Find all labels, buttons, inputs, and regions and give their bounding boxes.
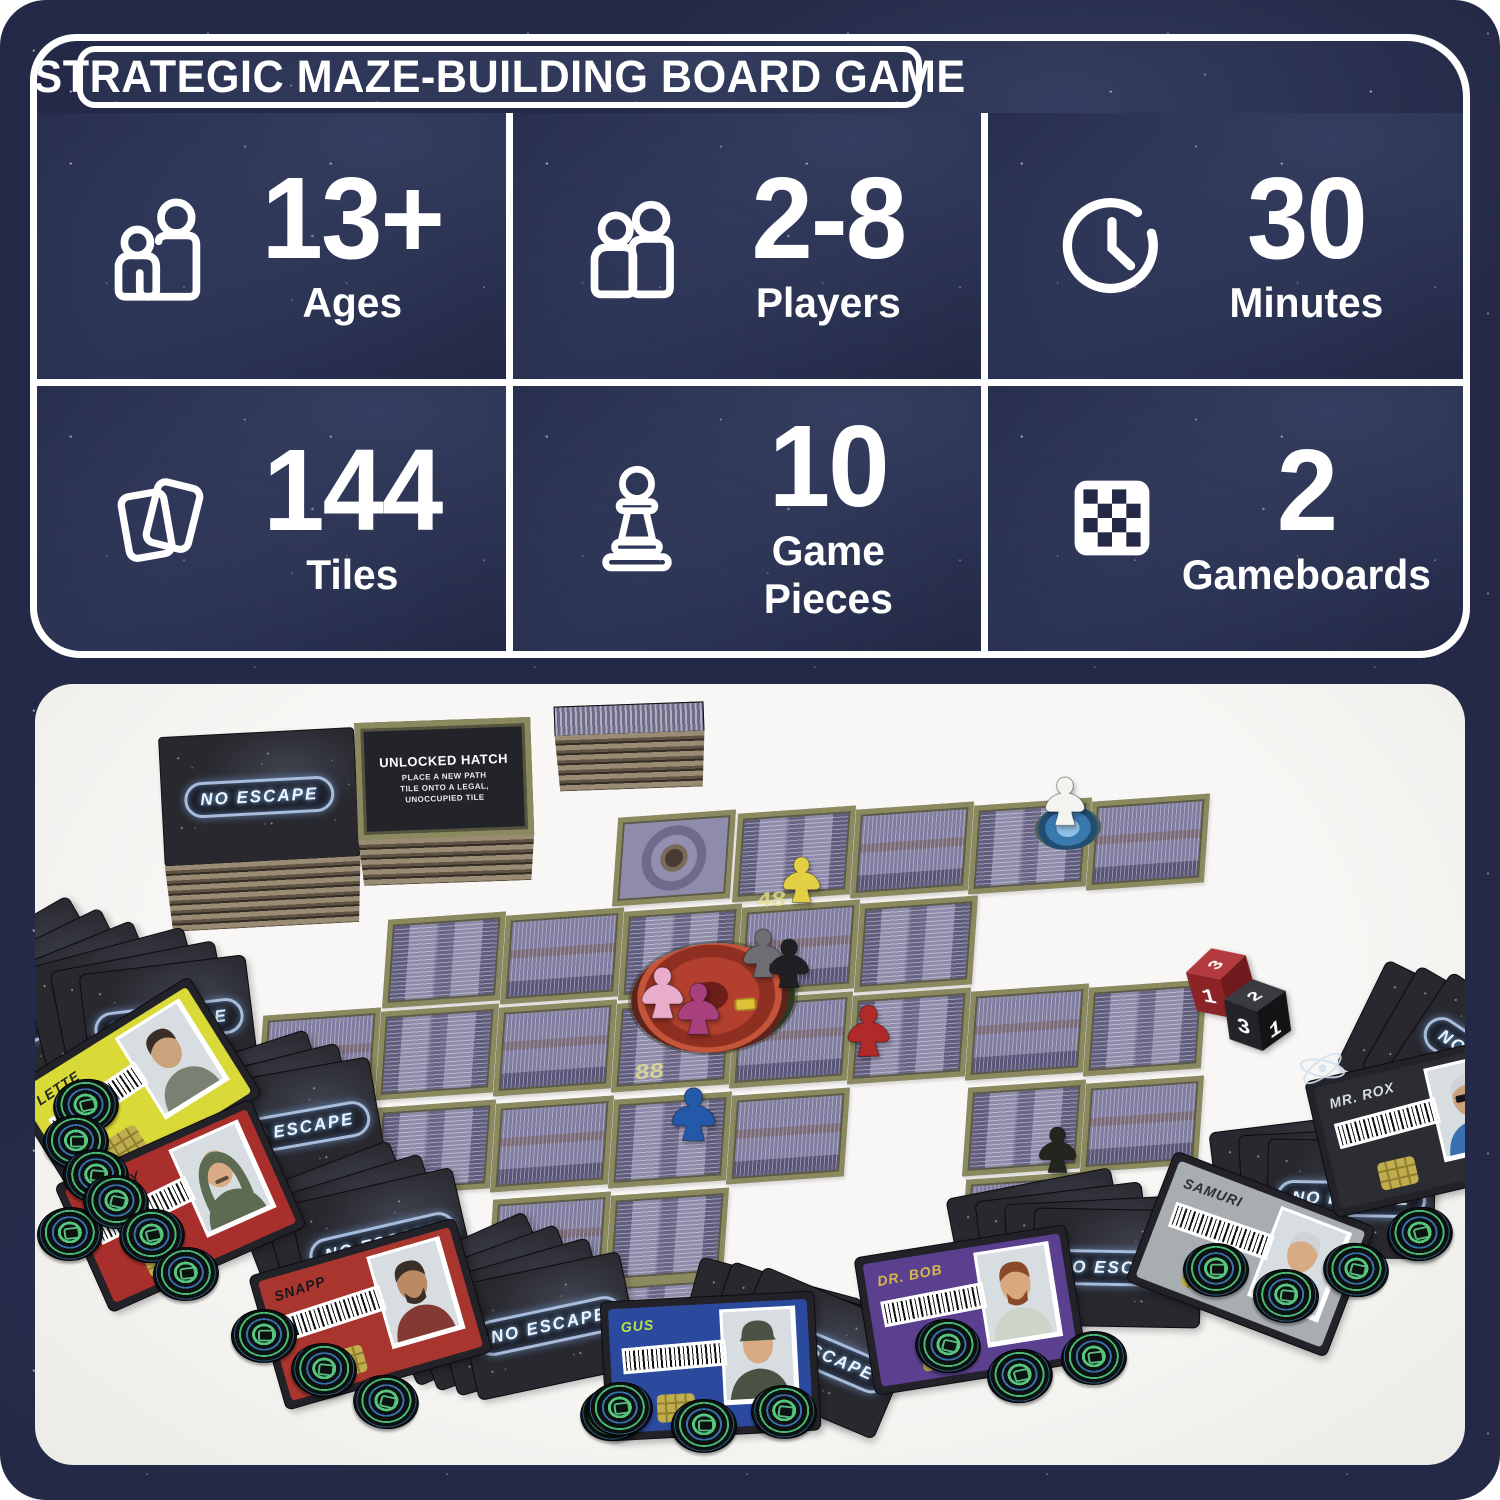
chip-icon — [1376, 1155, 1419, 1191]
logo-text: NO ESCAPE — [489, 1304, 609, 1347]
tile-stack-side — [554, 701, 707, 791]
stat-label: Gameboards — [1182, 551, 1431, 599]
stat-value: 30 — [1185, 159, 1429, 277]
stat-cell-game-pieces: 10Game Pieces — [513, 386, 982, 652]
stack-side — [555, 730, 707, 791]
tile-stack-logo: NO ESCAPE — [158, 727, 364, 932]
title-box: STRATEGIC MAZE-BUILDING BOARD GAME — [77, 46, 922, 108]
board-tile — [493, 1000, 617, 1097]
stats-grid: 13+Ages2-8Players30Minutes144Tiles10Game… — [37, 113, 1463, 651]
stat-label: Tiles — [231, 551, 474, 599]
character-name: SAMURI — [1182, 1175, 1245, 1210]
pawn-icon — [571, 458, 703, 578]
stat-text: 2Gameboards — [1178, 431, 1435, 599]
players-icon — [571, 187, 703, 305]
red-meeple — [841, 998, 896, 1068]
stats-panel: STRATEGIC MAZE-BUILDING BOARD GAME 13+Ag… — [30, 34, 1470, 658]
stat-cell-tiles: 144Tiles — [37, 386, 506, 652]
stat-label: Ages — [231, 279, 474, 327]
board-marking: 88 — [634, 1058, 665, 1085]
resource-token — [671, 1399, 737, 1453]
stack-side — [358, 834, 535, 886]
stack-top-hatch: UNLOCKED HATCHPLACE A NEW PATHTILE ONTO … — [354, 717, 534, 841]
gameboard-icon — [1046, 463, 1178, 573]
board-tile-octagon — [612, 810, 736, 907]
hatch-card-title: UNLOCKED HATCH — [379, 751, 508, 770]
stat-value: 2 — [1185, 431, 1429, 549]
character-name: SNAPP — [272, 1273, 328, 1305]
tiles-icon — [95, 458, 227, 578]
board-tile — [726, 1088, 850, 1185]
yellow-meeple — [777, 850, 826, 914]
stat-text: 144Tiles — [227, 431, 478, 599]
stack-top-logo: NO ESCAPE — [158, 727, 361, 867]
clock-icon — [1046, 188, 1178, 304]
board-tile — [850, 802, 974, 899]
stat-text: 10Game Pieces — [703, 407, 954, 623]
board-tile — [490, 1096, 614, 1193]
character-portrait — [973, 1241, 1063, 1348]
stat-cell-ages: 13+Ages — [37, 113, 506, 379]
character-name: GUS — [620, 1316, 655, 1335]
board-tile — [1086, 794, 1210, 891]
stat-value: 144 — [233, 431, 471, 549]
stat-cell-players: 2-8Players — [513, 113, 982, 379]
magenta-meeple — [671, 976, 726, 1046]
board-tile — [965, 984, 1089, 1081]
no-escape-logo: NO ESCAPE — [183, 775, 335, 819]
stats-panel-inner: STRATEGIC MAZE-BUILDING BOARD GAME 13+Ag… — [37, 41, 1463, 651]
stat-cell-minutes: 30Minutes — [988, 113, 1463, 379]
stat-value: 13+ — [233, 159, 471, 277]
board-tile — [382, 912, 506, 1009]
board-tile — [854, 896, 978, 993]
page-title: STRATEGIC MAZE-BUILDING BOARD GAME — [37, 51, 966, 103]
blue-meeple — [665, 1080, 722, 1153]
hatch-card-line: UNOCCUPIED TILE — [405, 793, 485, 807]
logo-text: NO ESCAPE — [200, 784, 319, 809]
black-meeple — [763, 932, 815, 999]
stat-label: Minutes — [1182, 279, 1431, 327]
stat-value: 2-8 — [709, 159, 947, 277]
board-tile — [500, 908, 624, 1005]
character-portrait — [115, 998, 230, 1120]
stat-cell-gameboards: 2Gameboards — [988, 386, 1463, 652]
hub-badge — [734, 997, 757, 1011]
tile-stack-hatch: UNLOCKED HATCHPLACE A NEW PATHTILE ONTO … — [354, 717, 536, 886]
black-die: 231 — [1215, 969, 1300, 1065]
stat-text: 30Minutes — [1178, 159, 1435, 327]
resource-token — [1183, 1243, 1249, 1297]
stat-value: 10 — [709, 407, 947, 525]
stack-side — [165, 856, 364, 932]
resource-token — [231, 1309, 297, 1363]
stat-label: Players — [706, 279, 949, 327]
board-tile — [375, 1004, 499, 1101]
stat-text: 13+Ages — [227, 159, 478, 327]
ages-icon — [95, 187, 227, 305]
barcode — [622, 1339, 728, 1374]
character-name: DR. BOB — [876, 1261, 944, 1289]
stat-text: 2-8Players — [703, 159, 954, 327]
white-meeple — [1039, 770, 1091, 837]
components-photo: 4888NO ESCAPEUNLOCKED HATCHPLACE A NEW P… — [35, 684, 1465, 1465]
board-game-product-image: STRATEGIC MAZE-BUILDING BOARD GAME 13+Ag… — [0, 0, 1500, 1500]
stat-label: Game Pieces — [706, 527, 949, 623]
